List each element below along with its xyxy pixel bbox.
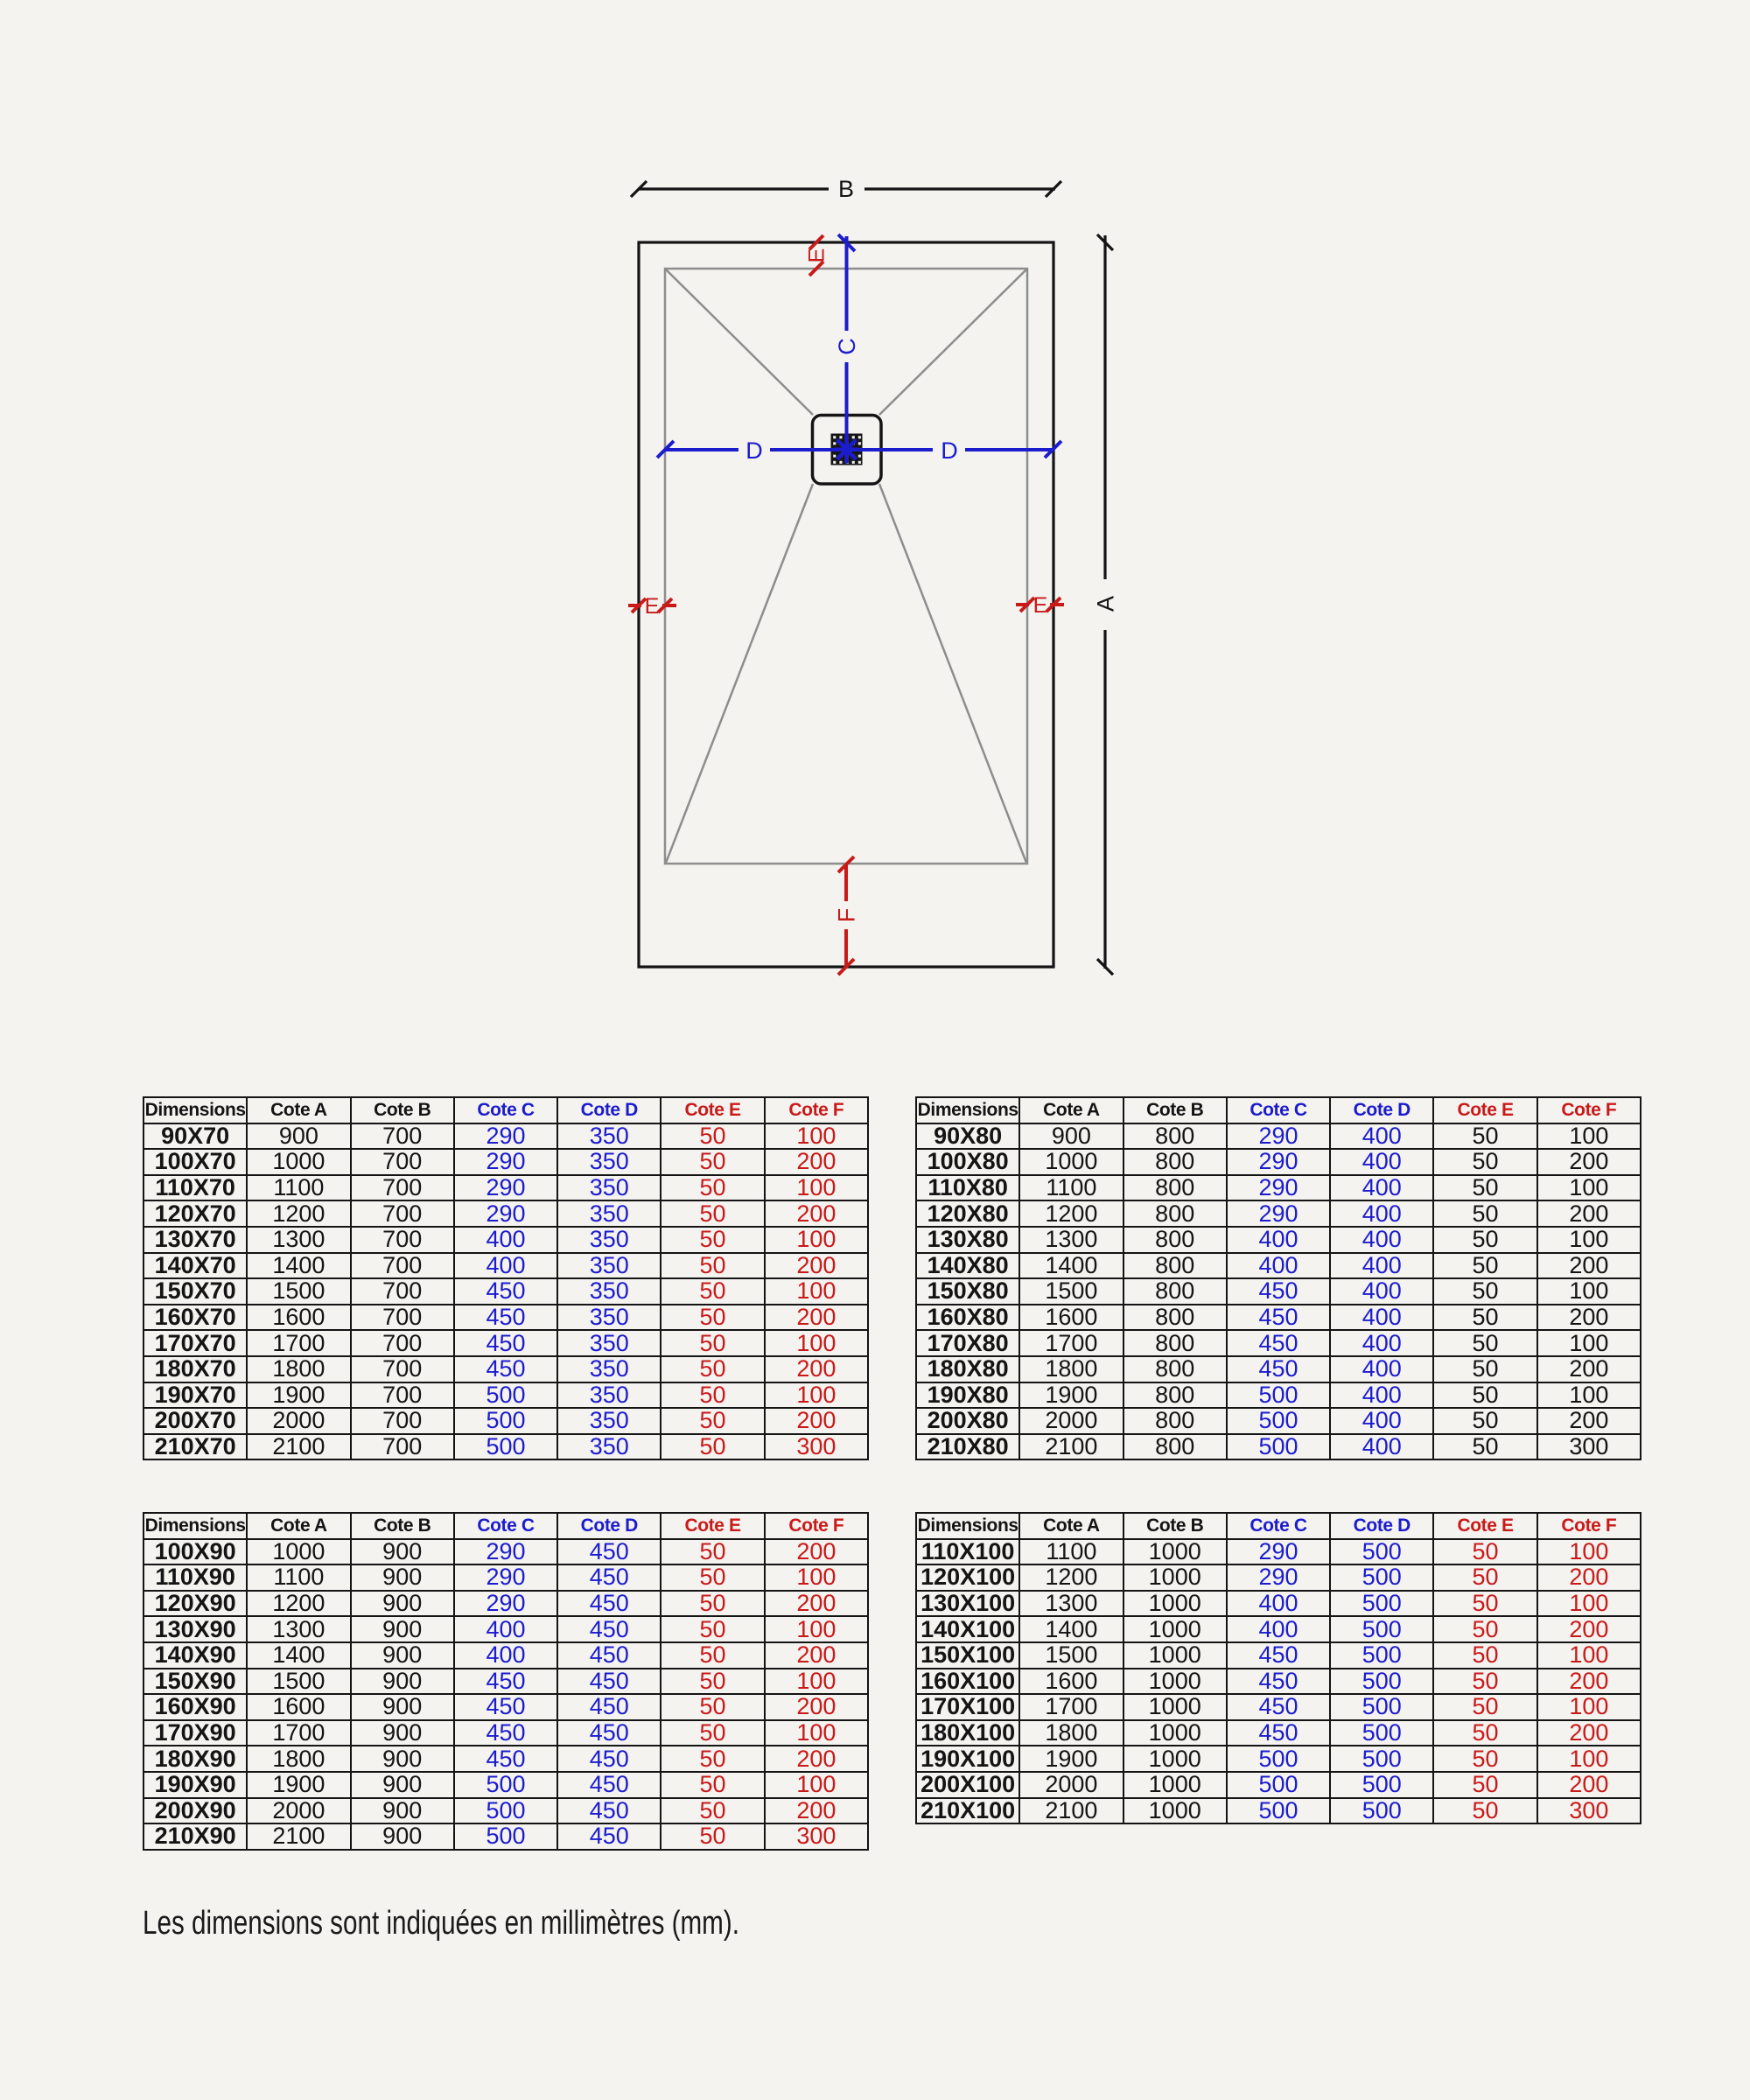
svg-text:E: E — [805, 248, 829, 263]
svg-text:C: C — [834, 338, 860, 355]
svg-text:F: F — [834, 908, 860, 923]
svg-text:D: D — [745, 437, 763, 464]
svg-text:A: A — [1093, 596, 1119, 612]
svg-text:D: D — [941, 437, 958, 464]
svg-text:B: B — [838, 176, 854, 202]
svg-text:E: E — [1033, 593, 1048, 618]
svg-text:E: E — [645, 594, 660, 619]
